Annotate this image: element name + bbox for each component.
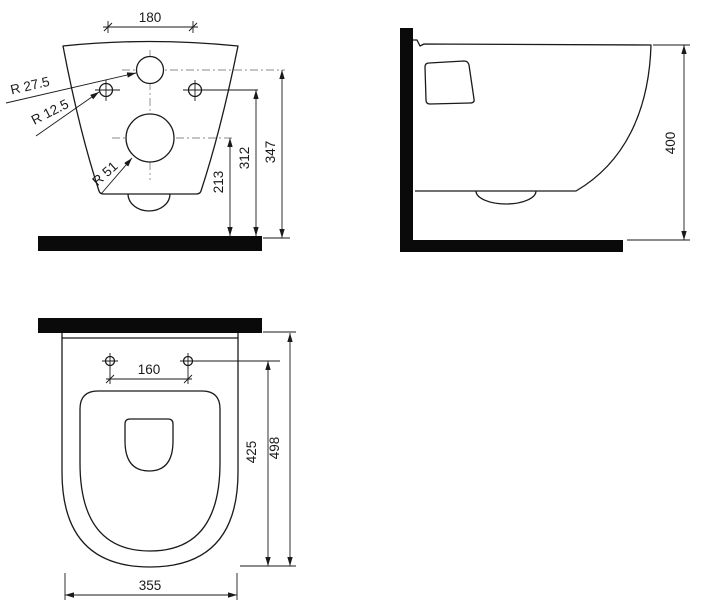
dim-312-label: 312: [237, 147, 252, 170]
dim-347-label: 347: [263, 141, 278, 164]
dim-425-label: 425: [244, 441, 259, 464]
side-body-profile: [413, 40, 651, 191]
water-inlet-hole: [137, 57, 164, 84]
front-floor-section: [38, 236, 262, 251]
dim-355: 355: [65, 573, 237, 600]
technical-drawing-page: 180 213 312 347 R 27.5 R 12.5 R 5: [0, 0, 701, 614]
dim-347: 347: [263, 70, 290, 238]
dim-180: 180: [103, 10, 198, 33]
dim-425: 425: [244, 361, 268, 566]
dim-312: 312: [237, 90, 256, 236]
toilet-dimension-drawing: 180 213 312 347 R 27.5 R 12.5 R 5: [0, 0, 701, 614]
leader-r12-5-label: R 12.5: [29, 96, 71, 127]
dim-160-label: 160: [138, 362, 161, 377]
dim-213: 213: [211, 138, 230, 236]
dim-498-label: 498: [267, 437, 282, 460]
drain-hole: [126, 114, 174, 162]
dim-213-label: 213: [211, 171, 226, 194]
top-view: 160 425 498 355: [38, 318, 296, 600]
dim-400-label: 400: [663, 132, 678, 155]
side-drain-bump: [476, 191, 536, 204]
dim-180-label: 180: [139, 10, 162, 25]
side-view: 400: [400, 28, 690, 252]
top-wall-section: [38, 318, 262, 333]
side-floor-section: [400, 240, 623, 252]
side-wall-section: [400, 28, 413, 252]
front-drain-bump: [128, 194, 170, 211]
dim-355-label: 355: [139, 578, 162, 593]
front-view: 180 213 312 347 R 27.5 R 12.5 R 5: [6, 10, 290, 251]
